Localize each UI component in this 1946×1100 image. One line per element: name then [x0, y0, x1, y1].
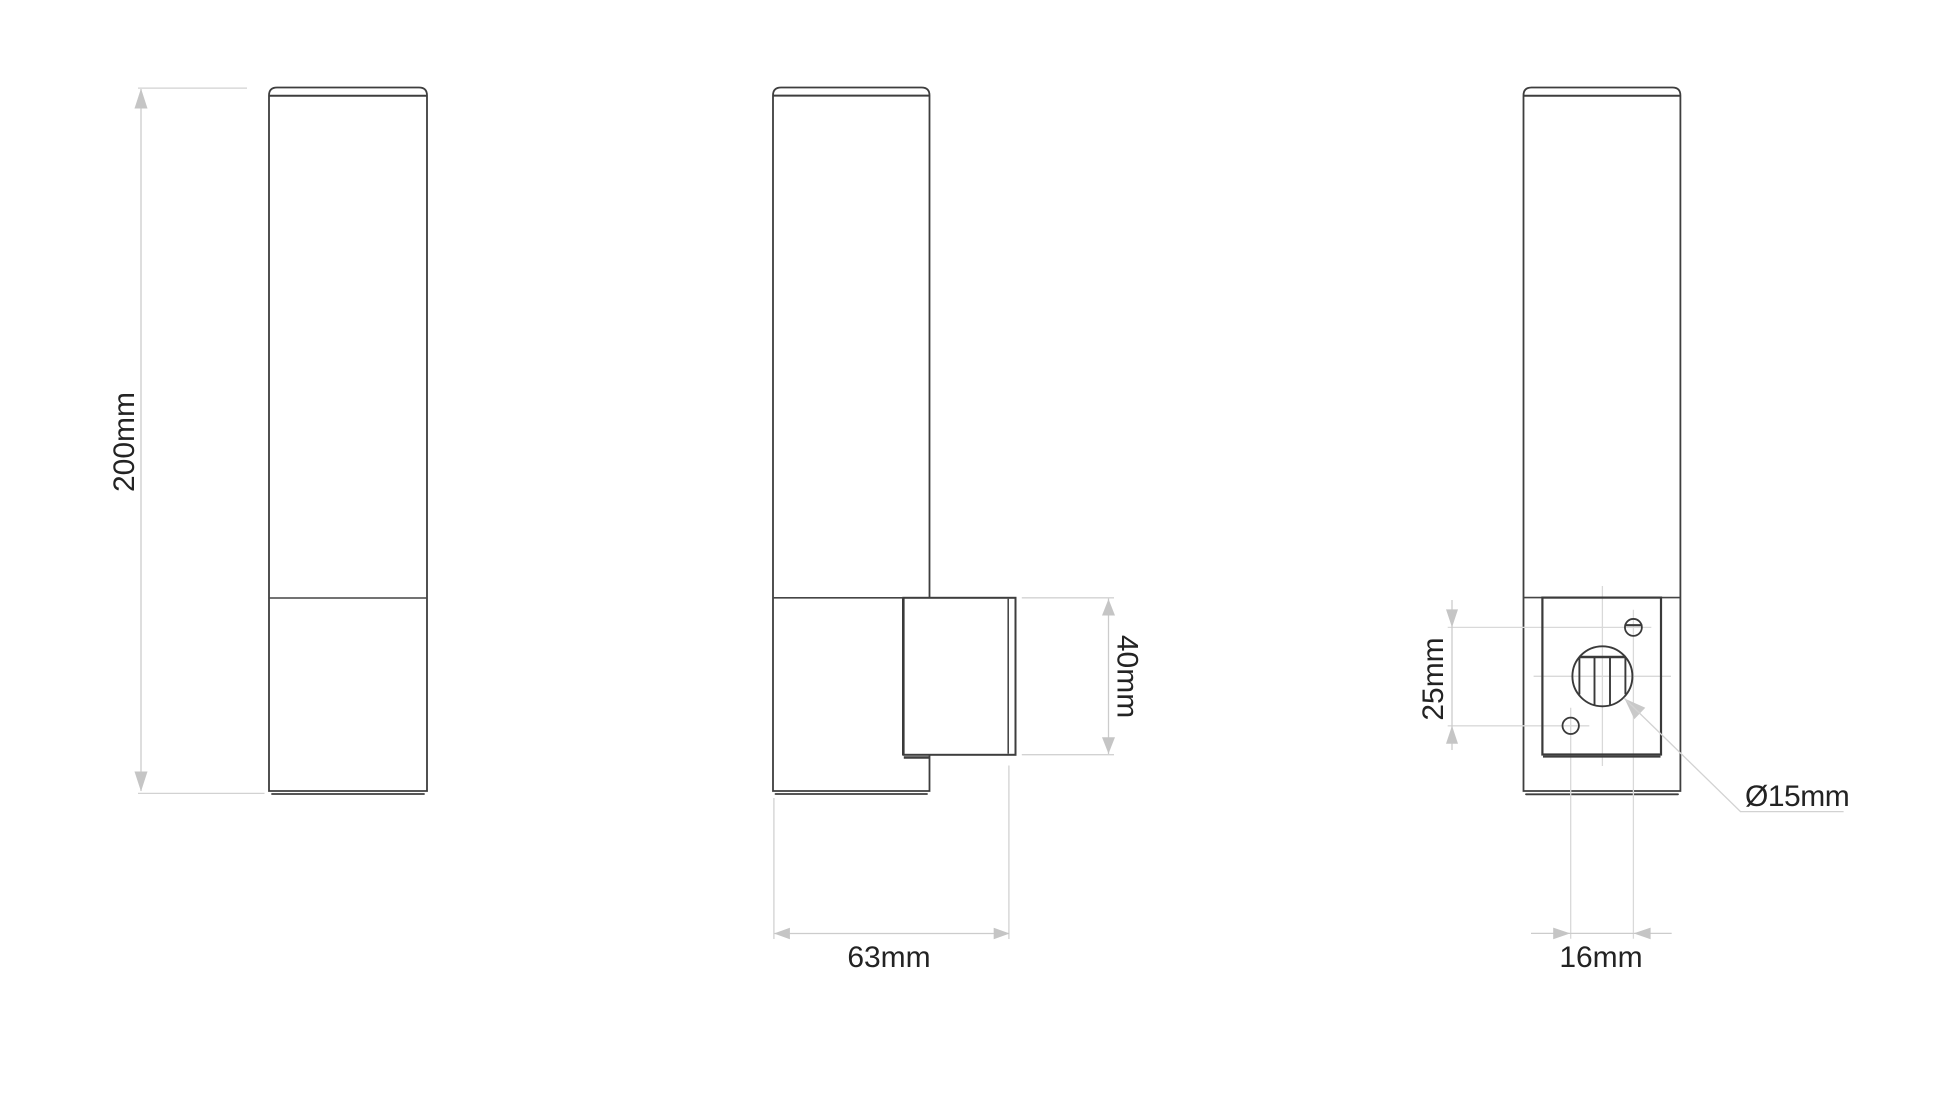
svg-text:40mm: 40mm — [1111, 635, 1144, 718]
svg-text:Ø15mm: Ø15mm — [1745, 780, 1849, 813]
svg-text:25mm: 25mm — [1417, 637, 1450, 720]
svg-text:200mm: 200mm — [108, 392, 141, 492]
svg-text:63mm: 63mm — [847, 941, 930, 974]
svg-text:16mm: 16mm — [1559, 941, 1642, 974]
